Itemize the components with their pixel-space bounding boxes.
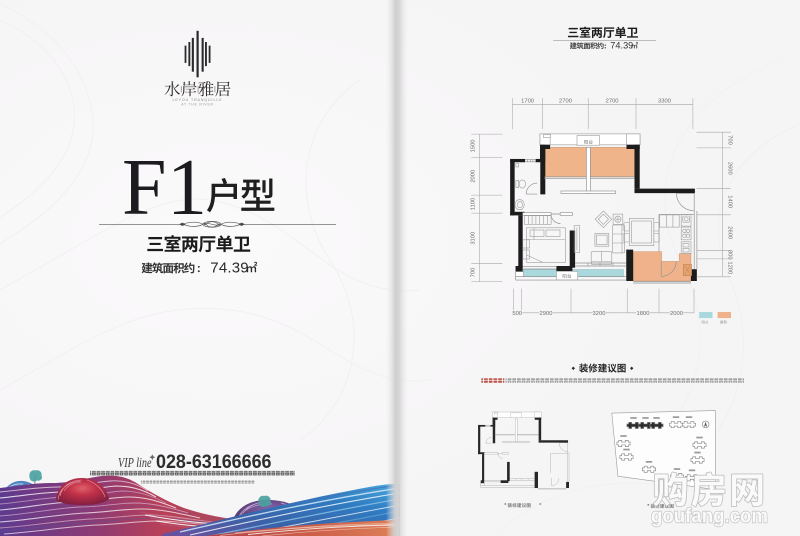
svg-text:2600: 2600 — [726, 162, 732, 175]
svg-text:028-63166666: 028-63166666 — [156, 451, 272, 473]
svg-text:700: 700 — [471, 268, 477, 278]
svg-text:2700: 2700 — [559, 99, 572, 105]
svg-text:AT THE RIVER: AT THE RIVER — [181, 103, 214, 107]
svg-text:2700: 2700 — [606, 99, 619, 105]
svg-text:500: 500 — [512, 311, 522, 317]
svg-text:VIP line: VIP line — [118, 455, 152, 470]
svg-text:goufang.com: goufang.com — [651, 505, 768, 528]
svg-text:1100: 1100 — [471, 198, 477, 210]
svg-text:LEYOU TRANQUILLE: LEYOU TRANQUILLE — [172, 98, 222, 102]
svg-text:2900: 2900 — [540, 311, 553, 317]
svg-text:74.39: 74.39 — [210, 259, 249, 276]
svg-text:2000: 2000 — [670, 311, 683, 317]
svg-text:1500: 1500 — [471, 139, 477, 152]
svg-text:3100: 3100 — [471, 232, 477, 245]
svg-text:3200: 3200 — [593, 311, 606, 317]
svg-text:3300: 3300 — [658, 99, 671, 105]
svg-text:800: 800 — [726, 250, 732, 260]
svg-text:2600: 2600 — [726, 226, 732, 239]
svg-text:1200: 1200 — [726, 261, 732, 274]
svg-text:1700: 1700 — [521, 99, 534, 105]
svg-text:700: 700 — [726, 135, 732, 145]
svg-text:74.39: 74.39 — [610, 40, 633, 50]
svg-text:2000: 2000 — [471, 170, 477, 183]
svg-text:F1: F1 — [122, 144, 208, 232]
svg-text:1800: 1800 — [637, 311, 650, 317]
svg-text:1400: 1400 — [726, 195, 732, 208]
